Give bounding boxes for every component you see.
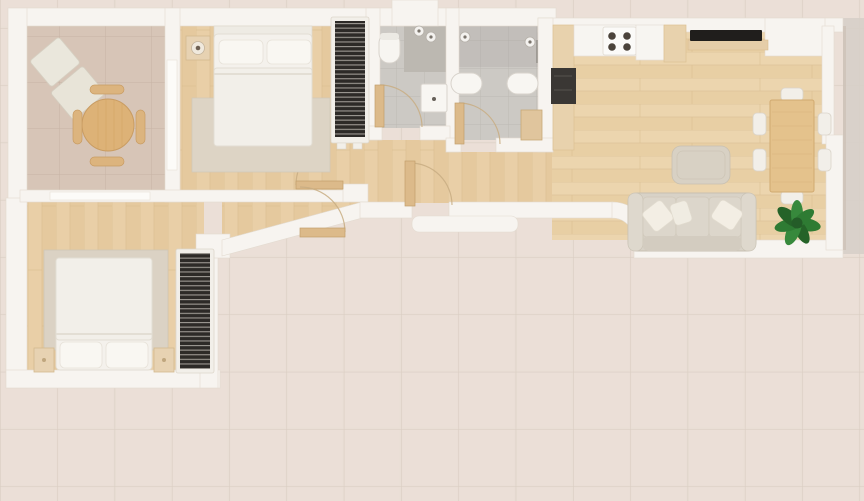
sofa-armrest-left (628, 193, 643, 251)
dining-table (770, 100, 814, 192)
bed-1-duvet (214, 68, 312, 146)
ceiling-light-4-dot (528, 40, 531, 43)
bed-1-pillow-left (219, 40, 263, 64)
burner-3 (608, 43, 616, 51)
stool-east (136, 110, 145, 144)
entrance-threshold (412, 216, 518, 232)
burner-1 (608, 32, 616, 40)
bathroom-2-door-leaf (455, 103, 464, 144)
top-wall-west (8, 8, 556, 26)
wardrobe-1-slats (335, 21, 365, 137)
bedroom-2-door-leaf (300, 228, 345, 237)
dining-chair-west-1 (753, 113, 766, 135)
top-wall-shaft (392, 0, 438, 26)
media-shelf (688, 40, 768, 50)
stool-north (90, 85, 124, 94)
bedroom-2-furniture (34, 249, 214, 373)
dining-chair-east-1 (818, 113, 831, 135)
bathroom-1-door-leaf (375, 85, 384, 127)
dining-chair-west-2 (753, 149, 766, 171)
washbasin-1-drain (432, 97, 436, 101)
ceiling-light-2-dot (429, 35, 432, 38)
wardrobe-2-slats (180, 253, 210, 369)
ceiling-light-1-dot (417, 29, 420, 32)
sliding-door-vertical (167, 60, 177, 170)
dark-appliance (551, 68, 576, 104)
sliding-door-horizontal (50, 192, 150, 200)
nightstand-2-right-knob (162, 358, 166, 362)
ceiling-light-3-dot (463, 35, 466, 38)
shower-area (404, 26, 446, 72)
burner-4 (623, 43, 631, 51)
entrance-door-leaf (405, 161, 415, 206)
bed-2-pillow-left (60, 342, 102, 368)
wardrobe-1-foot-left (337, 143, 346, 149)
bathroom-1-bottom-stub-right (420, 126, 450, 140)
bedroom-2-left-wall (6, 198, 27, 388)
stool-west (73, 110, 82, 144)
counter-end-white (636, 25, 664, 60)
toilet-2 (451, 73, 482, 94)
plant-center (792, 218, 803, 229)
burner-2 (623, 32, 631, 40)
sofa-back (643, 236, 741, 251)
bidet (507, 73, 538, 94)
top-wall-corner-block (765, 18, 825, 56)
toilet-1-tank (380, 33, 399, 40)
table-lamp-center (196, 46, 201, 51)
building-edge-shadow (843, 26, 846, 250)
nightstand-2-left-knob (42, 358, 46, 362)
south-wall-west (360, 202, 412, 218)
bed-1-pillow-right (267, 40, 311, 64)
counter-end-wood (664, 25, 686, 62)
bedroom-1-door-stub (343, 184, 368, 202)
bath-cabinet (521, 110, 542, 140)
round-table (82, 99, 134, 151)
floor-plan-stage (0, 0, 864, 501)
wardrobe-1-foot-right (353, 143, 362, 149)
sofa-armrest-right (741, 193, 756, 251)
bed-2-pillow-right (106, 342, 148, 368)
apartment-floor-plan (0, 0, 864, 501)
dining-chair-north (781, 88, 803, 101)
cooktop (603, 27, 636, 55)
wall-tv (690, 30, 762, 41)
south-wall-east (449, 202, 613, 218)
left-wall (8, 8, 27, 205)
exterior-right-strip (843, 18, 864, 254)
bed-2-duvet (56, 258, 152, 340)
bedroom-1-door-leaf (296, 181, 343, 189)
bathroom-2-shade (459, 25, 538, 67)
stool-south (90, 157, 124, 166)
dining-chair-east-2 (818, 149, 831, 171)
